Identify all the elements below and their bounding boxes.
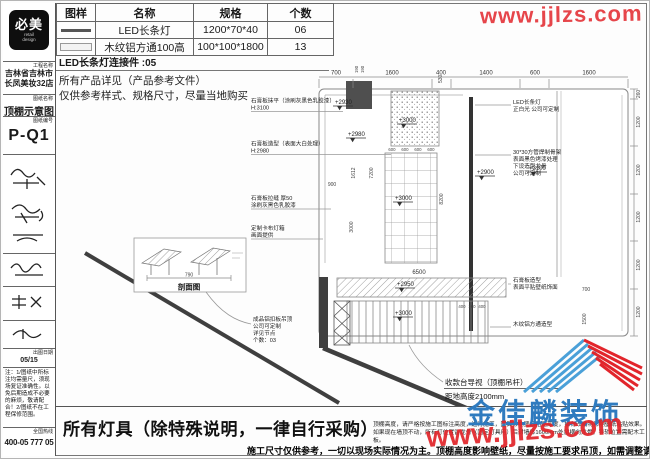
sheet-name-label: 图纸名称: [3, 95, 55, 102]
grid-ceiling-region: [385, 153, 437, 263]
wall-pier: [319, 277, 328, 348]
label-wood-louver: 木纹铝方通造型: [513, 320, 553, 328]
label-gypsum-flat-2: H:3100: [251, 106, 269, 112]
dim-right-2: 1200: [636, 164, 642, 175]
signature-cell-1: [3, 155, 55, 254]
hotline-label: 全国热线: [3, 428, 55, 435]
logo-subtitle-2: design: [22, 37, 35, 42]
logo-cell: 必美 retail design: [3, 3, 55, 62]
label-gypsum-seam-1: 石膏板拉缝 厚50: [251, 194, 292, 202]
title-block-sidebar: 必美 retail design 工程名称 吉林省吉林市 长凤美妆32店 图纸名…: [3, 3, 56, 456]
sheet-number-label: 图纸编号: [3, 117, 55, 124]
bimei-logo: 必美 retail design: [9, 10, 49, 50]
label-gypsum-band-2: 表面平贴壁纸饰面: [513, 283, 558, 291]
label-led-strip-2: 正白光 公司可定制: [513, 105, 560, 113]
project-name-label: 工程名称: [3, 62, 55, 69]
logo-red-stripes: [584, 340, 642, 390]
signature-cell-4: [3, 321, 55, 349]
signature-scribble: [7, 289, 51, 316]
project-name-line1: 吉林省吉林市: [3, 69, 55, 79]
label-panel-ceiling-4: 个数：03: [253, 336, 276, 344]
label-steel-frame-4: 公司可定制: [513, 169, 541, 177]
dim-190a: 190: [354, 65, 359, 73]
signature-cell-3: [3, 287, 55, 321]
dim-right-5: 1200: [636, 306, 642, 317]
label-gypsum-flat-1: 石膏板抹平（涂刷灰黑色乳胶漆）: [251, 97, 335, 105]
signature-scribble: [7, 256, 51, 282]
watermark-top: www.jjlzs.com: [480, 1, 643, 30]
label-lightbox-2: 画面提供: [251, 231, 274, 239]
elev-3000-stipple: +3000: [399, 118, 417, 124]
hotline-cell: 全国热线 400-05 777 05: [3, 428, 55, 456]
dim-louver-400: 400: [458, 304, 466, 309]
dim-right-0: 260: [636, 90, 642, 99]
signature-cell-2: [3, 254, 55, 287]
logo-title: 必美: [15, 18, 43, 32]
dim-700: 700: [582, 287, 591, 293]
dim-530: 530: [438, 74, 444, 83]
dim-right-4: 1200: [636, 259, 642, 270]
label-panel-ceiling-1: 成品铝扣板吊顶: [253, 315, 293, 323]
elev-2930: +2930: [335, 100, 353, 106]
dim-190b: 190: [360, 65, 365, 73]
hotline-number: 400-05 777 05: [3, 438, 55, 447]
inset-caption: 剖面图: [178, 282, 201, 292]
dim-grid-600: 600: [401, 147, 409, 152]
label-steel-frame-1: 30*30方管焊制骨架: [513, 148, 562, 156]
sheet-name-value: 顶棚示意图: [3, 103, 55, 117]
dim-top-3: 1400: [479, 71, 493, 77]
aluminum-louver-region: [347, 301, 488, 343]
label-gypsum-shape-1: 石膏板造型（表面大白处理）: [251, 140, 324, 148]
dim-900: 900: [328, 182, 337, 188]
sheet-name-cell: 图纸名称 顶棚示意图: [3, 95, 55, 117]
elev-3000-louver: +3000: [395, 311, 413, 317]
dim-grid-600: 600: [414, 147, 422, 152]
inset-dim-790: 790: [185, 273, 194, 279]
dim-8200: 8200: [439, 193, 445, 204]
dim-grid-600: 600: [388, 147, 396, 152]
label-gypsum-shape-2: H:2980: [251, 149, 269, 155]
dim-top-5: 1600: [582, 71, 596, 77]
sheet-number-cell: 图纸编号 P-Q1: [3, 117, 55, 155]
plan-outline: [319, 89, 628, 336]
dim-right-1: 1200: [636, 116, 642, 127]
date-label: 出图日期: [3, 349, 55, 356]
dim-1500: 1500: [582, 313, 588, 324]
cashier-note-line1: 收款台导视（顶棚吊杆）: [445, 377, 528, 387]
elev-2900: +2900: [477, 170, 495, 176]
label-lightbox-1: 定制卡布灯箱: [251, 224, 285, 232]
jinjialin-logo: [518, 334, 646, 398]
signature-scribble: [7, 323, 51, 344]
section-inset: 790 剖面图: [134, 238, 251, 324]
dim-top-1: 1600: [385, 71, 399, 77]
label-gypsum-band-1: 石膏板造型: [513, 276, 541, 284]
elev-2980: +2980: [348, 132, 366, 138]
sidebar-note: 注：1/图纸中所标注均需量尺，须现场复证准确性。以免后期造成不必要的麻烦，敬请配…: [3, 368, 55, 421]
dim-top-4: 600: [530, 71, 541, 77]
elev-2950: +2950: [397, 282, 415, 288]
date-value: 05/15: [3, 357, 55, 364]
signature-scribble: [7, 157, 51, 247]
dim-grid-600: 600: [427, 147, 435, 152]
elev-3000-grid: +3000: [395, 196, 413, 202]
project-name-cell: 工程名称 吉林省吉林市 长凤美妆32店: [3, 62, 55, 95]
leader-curve: [206, 292, 251, 324]
dim-3000: 3000: [349, 221, 355, 232]
label-steel-frame-3: 下设造型龙骨: [513, 162, 547, 170]
label-steel-frame-2: 表面黑色烤漆处理: [513, 155, 558, 163]
dim-7200: 7200: [369, 167, 375, 178]
label-panel-ceiling-3: 详见节点: [253, 329, 276, 337]
dim-6500: 6500: [412, 270, 426, 276]
dim-top-0: 700: [331, 71, 342, 77]
dim-right-3: 1200: [636, 211, 642, 222]
label-gypsum-seam-2: 涂刷灰黑色乳胶漆: [251, 201, 296, 209]
note-cell: 注：1/图纸中所标注均需量尺，须现场复证准确性。以免后期造成不必要的麻烦，敬请配…: [3, 368, 55, 428]
dim-1612: 1612: [351, 167, 357, 178]
hatched-soffit-band: [337, 278, 506, 297]
lamp-purchase-note: 所有灯具（除特殊说明，一律自行采购）: [63, 415, 378, 440]
dim-louver-100: 100: [468, 304, 476, 309]
sheet-number-value: P-Q1: [3, 127, 55, 145]
drawing-sheet: 必美 retail design 工程名称 吉林省吉林市 长凤美妆32店 图纸名…: [0, 0, 650, 459]
project-name-line2: 长凤美妆32店: [3, 79, 55, 89]
dim-louver-400b: 400: [478, 304, 486, 309]
date-cell: 出图日期 05/15: [3, 349, 55, 368]
label-led-strip-1: LED长条灯: [513, 98, 541, 106]
label-panel-ceiling-2: 公司可定制: [253, 322, 281, 330]
